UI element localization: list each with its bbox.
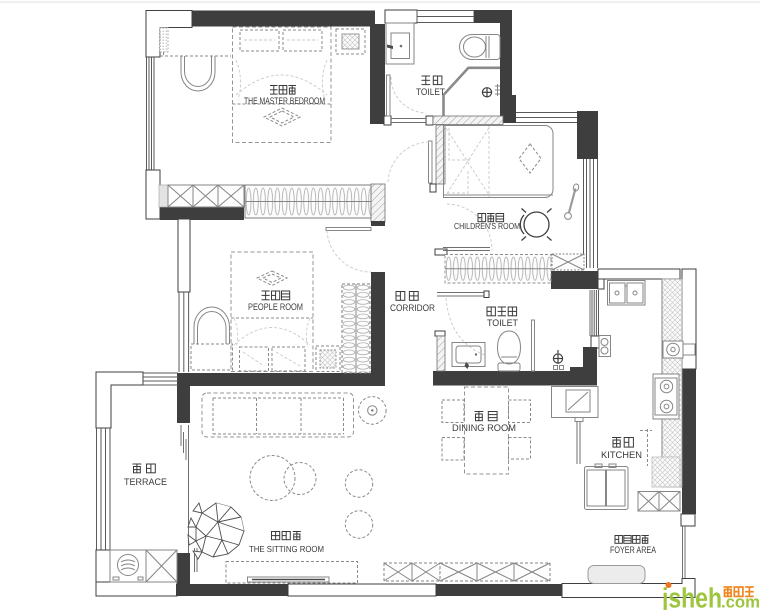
svg-text:FOYER AREA: FOYER AREA xyxy=(610,545,656,556)
svg-text:.com: .com xyxy=(721,593,760,610)
svg-text:TERRACE: TERRACE xyxy=(124,477,167,488)
svg-text:jsheh: jsheh xyxy=(661,583,722,610)
svg-text:DINING ROOM: DINING ROOM xyxy=(452,423,516,434)
svg-text:KITCHEN: KITCHEN xyxy=(601,450,642,461)
svg-text:THE MASTER BEDROOM: THE MASTER BEDROOM xyxy=(244,96,325,107)
svg-text:PEOPLE ROOM: PEOPLE ROOM xyxy=(248,302,303,313)
svg-text:CORRIDOR: CORRIDOR xyxy=(390,303,435,314)
svg-text:TOILET: TOILET xyxy=(416,87,445,98)
svg-text:TOILET: TOILET xyxy=(487,318,518,329)
svg-text:CHILDREN'S ROOM: CHILDREN'S ROOM xyxy=(454,221,520,231)
svg-text:THE SITTING ROOM: THE SITTING ROOM xyxy=(249,544,324,554)
